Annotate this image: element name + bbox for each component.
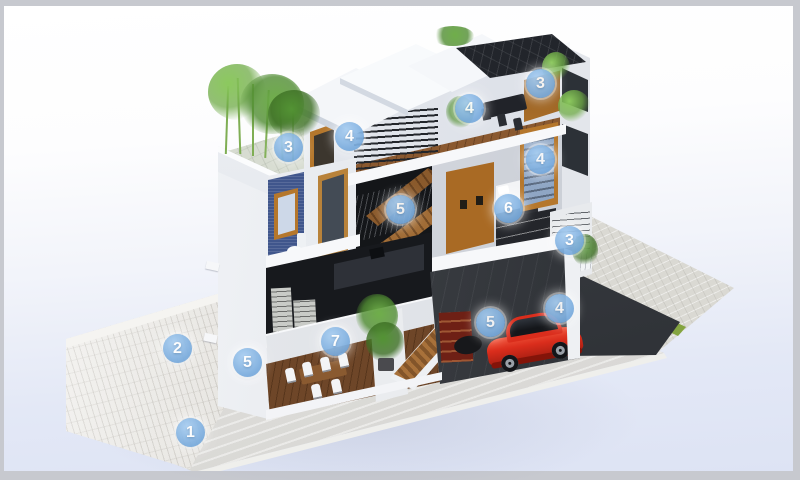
- callout-badge-2-1[interactable]: 2: [163, 334, 192, 363]
- plant-pot: [378, 358, 394, 371]
- callout-badge-5-10[interactable]: 5: [476, 308, 505, 337]
- framed-illustration: 12344345635457: [0, 0, 800, 480]
- callout-badge-5-7[interactable]: 5: [386, 195, 415, 224]
- wardrobe-handle: [476, 196, 483, 205]
- indoor-plant: [366, 322, 404, 362]
- callout-badge-4-3[interactable]: 4: [335, 122, 364, 151]
- callout-badge-7-13[interactable]: 7: [321, 327, 350, 356]
- callout-badge-4-6[interactable]: 4: [526, 145, 555, 174]
- roof-vine: [432, 26, 474, 46]
- callout-badge-4-11[interactable]: 4: [545, 294, 574, 323]
- book-stack: [271, 288, 293, 333]
- house-cutaway-scene: 12344345635457: [4, 6, 793, 471]
- callout-badge-1-0[interactable]: 1: [176, 418, 205, 447]
- callout-badge-3-2[interactable]: 3: [274, 133, 303, 162]
- callout-badge-3-9[interactable]: 3: [555, 226, 584, 255]
- callout-badge-4-4[interactable]: 4: [455, 94, 484, 123]
- callout-badge-5-12[interactable]: 5: [233, 348, 262, 377]
- facade-plant: [558, 90, 590, 122]
- floor-slab-tab: [205, 261, 219, 272]
- wardrobe-handle: [460, 200, 467, 209]
- callout-badge-6-8[interactable]: 6: [494, 194, 523, 223]
- bamboo-foliage: [268, 90, 320, 138]
- callout-badge-3-5[interactable]: 3: [526, 69, 555, 98]
